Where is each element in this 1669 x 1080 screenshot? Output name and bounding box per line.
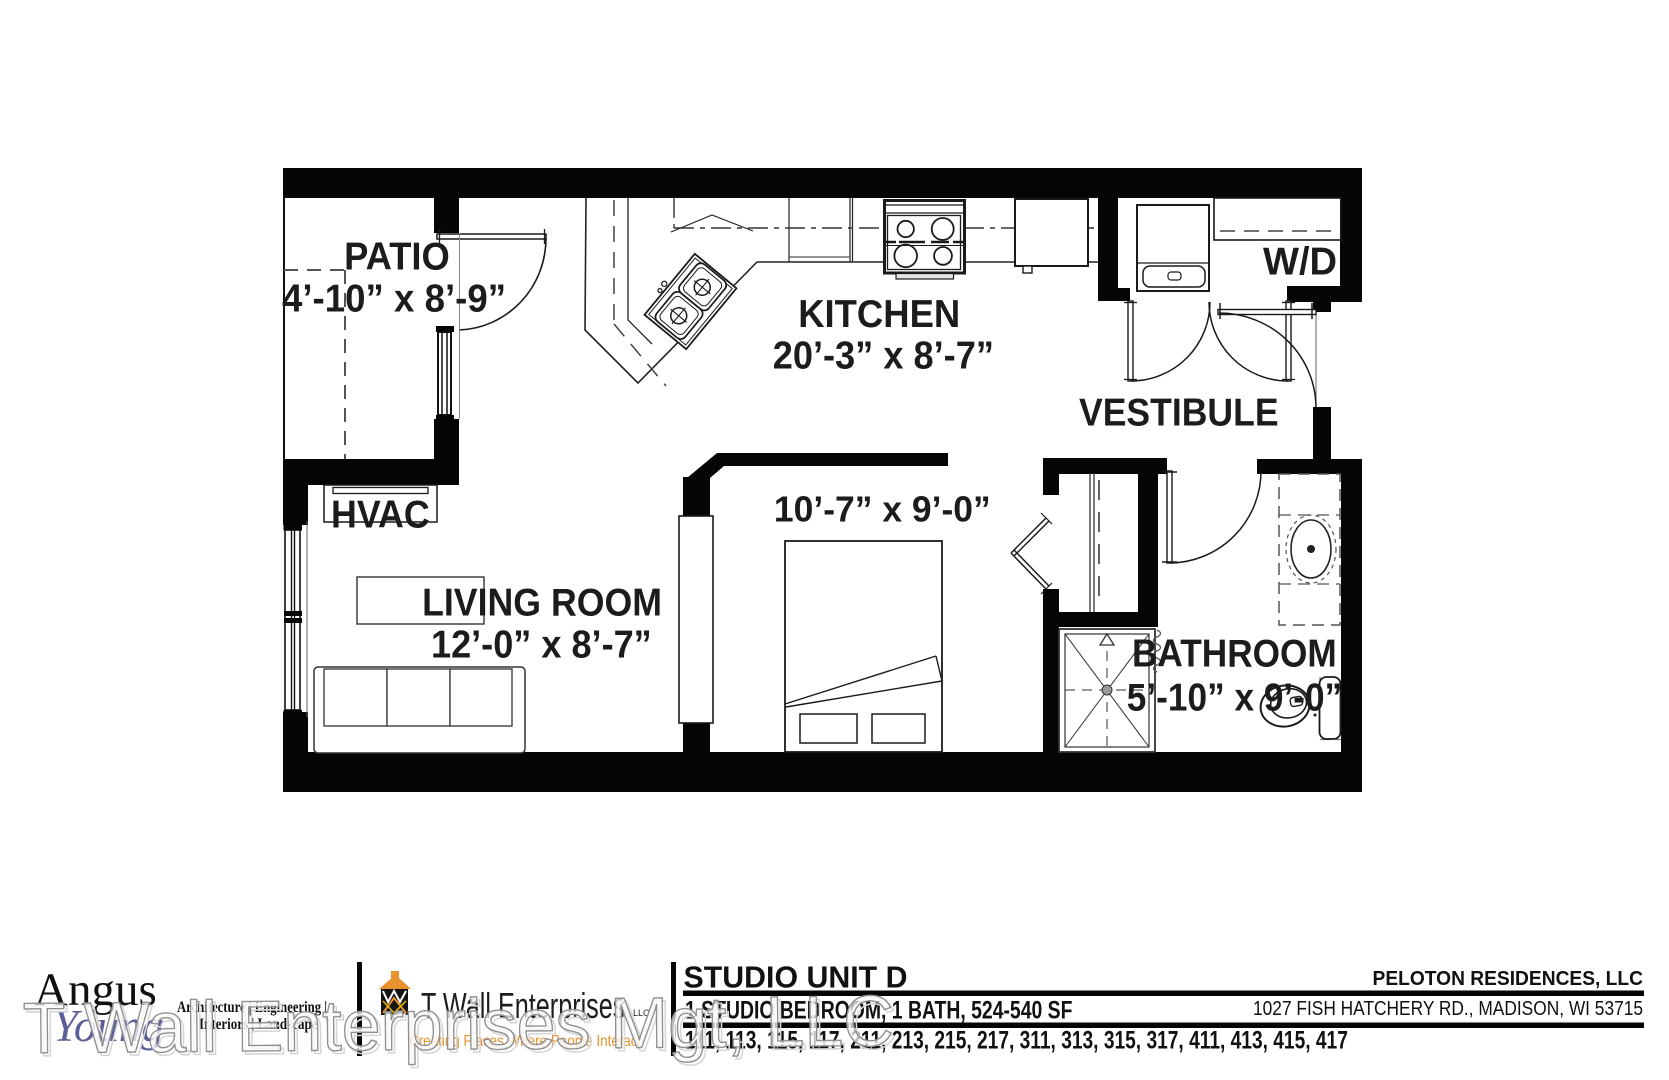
svg-text:12’-0” x 8’-7”: 12’-0” x 8’-7” [431, 622, 652, 665]
svg-text:PELOTON RESIDENCES, LLC: PELOTON RESIDENCES, LLC [1373, 968, 1643, 990]
svg-text:20’-3” x 8’-7”: 20’-3” x 8’-7” [773, 333, 994, 376]
svg-text:4’-10” x 8’-9”: 4’-10” x 8’-9” [282, 277, 506, 320]
svg-text:W/D: W/D [1263, 240, 1337, 283]
svg-text:HVAC: HVAC [331, 492, 430, 536]
svg-text:VESTIBULE: VESTIBULE [1079, 390, 1279, 434]
svg-text:KITCHEN: KITCHEN [798, 292, 960, 335]
svg-text:5’-10” x 9’-0”: 5’-10” x 9’-0” [1127, 676, 1342, 719]
svg-text:1027 FISH HATCHERY RD., MADISO: 1027 FISH HATCHERY RD., MADISON, WI 5371… [1253, 998, 1643, 1021]
svg-text:BATHROOM: BATHROOM [1132, 632, 1337, 675]
svg-text:LIVING ROOM: LIVING ROOM [422, 580, 662, 624]
svg-text:T Wall Enterprises Mgt, LLC: T Wall Enterprises Mgt, LLC [22, 982, 894, 1070]
svg-text:PATIO: PATIO [344, 234, 450, 277]
svg-text:10’-7” x 9’-0”: 10’-7” x 9’-0” [774, 488, 991, 530]
